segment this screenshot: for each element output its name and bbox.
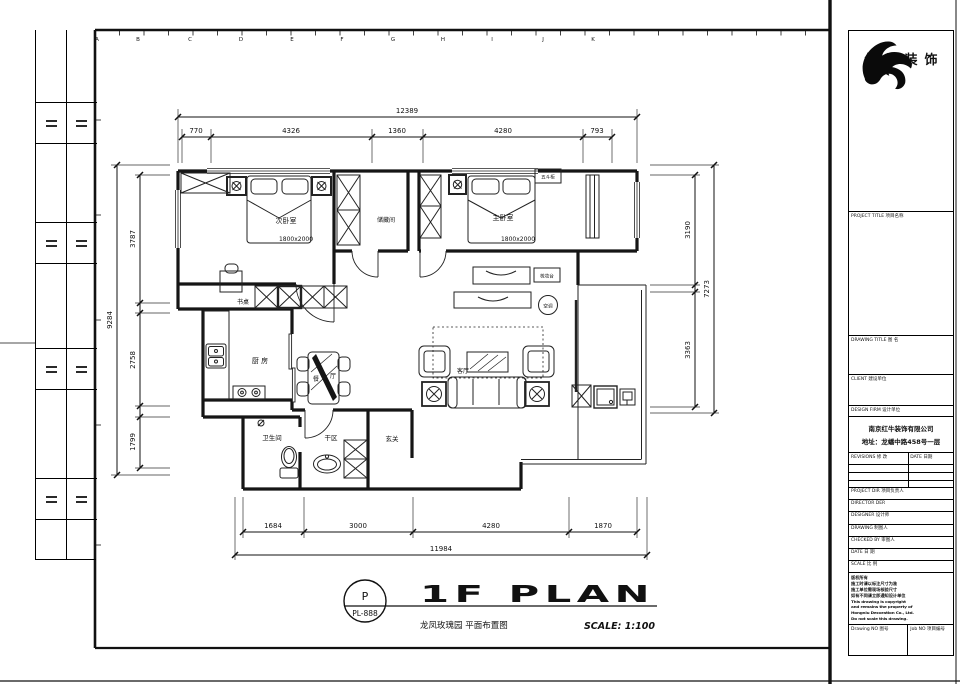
hall-cabinet-x — [301, 286, 324, 308]
svg-text:4280: 4280 — [482, 522, 500, 530]
armchair — [419, 346, 450, 377]
label-kitchen: 厨 房 — [252, 356, 268, 365]
label-bathroom: 卫生间 — [262, 433, 282, 442]
svg-text:4326: 4326 — [282, 127, 300, 135]
label-ac: 空调 — [543, 303, 553, 310]
bedroom2-furniture — [220, 176, 331, 292]
svg-text:1360: 1360 — [388, 127, 406, 135]
scale-row: SCALE 比 例 — [849, 560, 953, 572]
label-dining-left: 餐 — [313, 375, 319, 383]
hall-cabinet-x — [324, 286, 347, 308]
revision-row — [849, 472, 953, 480]
svg-text:H: H — [441, 37, 445, 43]
checked-row: CHECKED BY 审图人 — [849, 536, 953, 548]
label-master: 主卧室 — [493, 213, 514, 222]
svg-text:793: 793 — [590, 127, 603, 135]
label-bed2-size: 1800x2000 — [279, 236, 313, 243]
svg-text:C: C — [188, 37, 192, 43]
notes-block: 版权所有 施工时请以标注尺寸为准 施工单位需现场核验尺寸 如有不同请立即通知设计… — [849, 572, 953, 624]
job-no-label: Job NO 项目编号 — [908, 625, 953, 655]
dresser — [473, 267, 530, 284]
svg-text:K: K — [591, 37, 595, 43]
shoe-cabinet-x — [344, 440, 367, 478]
svg-text:J: J — [541, 37, 544, 43]
dining-set — [297, 352, 350, 404]
svg-text:F: F — [340, 37, 343, 43]
logo-section: 红牛装饰 — [849, 31, 953, 211]
revisions-table: REVISIONS 修 改 DATE 日期 — [849, 452, 953, 487]
floor-drain — [258, 420, 264, 426]
svg-text:E: E — [290, 37, 294, 43]
stamp-letter: P — [362, 590, 369, 603]
bed — [247, 176, 311, 243]
stove — [233, 386, 265, 399]
plan-subtitle: 龙凤玫瑰园 平面布置图 — [420, 620, 508, 631]
dim-top-total: 12389 — [396, 107, 418, 115]
nightstand — [449, 175, 466, 194]
client-box — [849, 385, 953, 405]
signature-cell — [36, 348, 97, 390]
project-title-box — [849, 222, 953, 335]
svg-text:G: G — [391, 37, 395, 43]
armchair — [523, 346, 554, 377]
label-chest: 五斗柜 — [541, 174, 555, 181]
bed — [468, 176, 535, 243]
signature-cell — [36, 222, 97, 264]
closet-rails — [586, 175, 599, 238]
coffee-table — [467, 352, 508, 372]
drawing-sheet: A B C D E F G H I J K — [0, 0, 960, 684]
label-entry: 玄关 — [386, 434, 400, 443]
svg-text:1684: 1684 — [264, 522, 282, 530]
svg-text:3787: 3787 — [129, 230, 137, 248]
svg-text:I: I — [491, 37, 493, 43]
svg-text:2758: 2758 — [129, 351, 137, 369]
dimensions: 12389 770 4326 1360 4280 793 11984 1684 … — [106, 107, 719, 560]
plan-title: 1F PLAN — [420, 582, 655, 608]
dim-left-total: 9284 — [106, 311, 114, 329]
sofa — [448, 377, 526, 408]
tv-cabinet — [454, 292, 531, 308]
signature-cell — [36, 102, 97, 144]
signature-strip — [35, 30, 96, 560]
master-furniture — [449, 169, 561, 284]
number-row: Drawing NO 图号 Job NO 项目编号 — [849, 624, 953, 655]
director-row: DIRECTOR DER — [849, 499, 953, 511]
svg-text:4280: 4280 — [494, 127, 512, 135]
project-title-label: PROJECT TITLE 项目名称 — [849, 211, 953, 222]
dim-bottom-total: 11984 — [430, 545, 453, 553]
svg-text:3363: 3363 — [684, 341, 692, 359]
side-table — [422, 382, 446, 406]
label-dining-right: 厅 — [330, 373, 336, 380]
floor-plan: 次卧室 1800x2000 储藏间 主卧室 1800x2000 书桌 厨 房 餐… — [175, 168, 646, 489]
date-col-label: DATE 日期 — [908, 453, 953, 464]
hall-cabinet-x — [255, 286, 278, 308]
living-room-furniture — [419, 292, 558, 408]
plan-title-group: P PL-888 1F PLAN 龙凤玫瑰园 平面布置图 SCALE: 1:10… — [344, 580, 657, 632]
bull-logo — [849, 31, 921, 109]
label-dry-area: 干区 — [325, 434, 339, 442]
revision-row — [849, 480, 953, 488]
label-dresser: 梳妆台 — [540, 273, 554, 280]
firm-address: 地址：龙蟠中路458号一层 — [862, 436, 941, 446]
client-label: CLIENT 建设单位 — [849, 374, 953, 385]
drawing-title-label: DRAWING TITLE 图 名 — [849, 335, 953, 346]
svg-text:1870: 1870 — [594, 522, 612, 530]
side-table — [525, 382, 549, 406]
label-storage: 储藏间 — [377, 216, 395, 224]
wardrobe-x — [420, 175, 441, 238]
sink — [206, 344, 226, 368]
stamp-code: PL-888 — [352, 609, 378, 618]
svg-text:1799: 1799 — [129, 433, 137, 451]
toilet — [280, 447, 298, 479]
firm-name: 南京红牛装饰有限公司 — [869, 423, 934, 433]
label-master-bed-size: 1800x2000 — [501, 236, 535, 243]
design-firm-label: DESIGN FIRM 设计单位 — [849, 405, 953, 416]
designer-row: DESIGNER 设计师 — [849, 511, 953, 524]
balcony — [521, 285, 646, 464]
balcony-cabinet-x — [572, 385, 591, 407]
revision-row — [849, 464, 953, 472]
signature-cell — [36, 478, 97, 520]
desk — [220, 264, 242, 292]
label-bedroom2: 次卧室 — [276, 216, 297, 225]
label-living: 客厅 — [457, 367, 469, 375]
kitchen-fixtures — [204, 311, 265, 399]
svg-text:3190: 3190 — [684, 221, 692, 239]
drawing-no-label: Drawing NO 图号 — [849, 625, 908, 655]
nightstand — [312, 177, 331, 195]
ruler-letters: A B C D E F G H I J K — [95, 37, 595, 43]
wash-basin — [314, 455, 341, 473]
drawing-row: DRAWING 制图人 — [849, 524, 953, 536]
wardrobe-x — [181, 173, 230, 193]
dim-right-total: 7273 — [703, 280, 711, 298]
svg-text:770: 770 — [189, 127, 202, 135]
plan-scale: SCALE: 1:100 — [584, 621, 655, 632]
wardrobe-x — [337, 175, 360, 245]
svg-text:D: D — [239, 37, 243, 43]
hall-cabinet-x — [278, 286, 301, 308]
design-firm-info: 南京红牛装饰有限公司 地址：龙蟠中路458号一层 — [849, 416, 953, 452]
drawing-title-box — [849, 346, 953, 374]
date-row: DATE 日 期 — [849, 548, 953, 560]
svg-text:B: B — [136, 37, 140, 43]
label-desk: 书桌 — [237, 298, 249, 306]
title-block: 红牛装饰 PROJECT TITLE 项目名称 DRAWING TITLE 图 … — [848, 30, 954, 656]
svg-text:3000: 3000 — [349, 522, 367, 530]
revisions-label: REVISIONS 修 改 — [849, 453, 887, 464]
project-dir-row: PROJECT DIR 项目负责人 — [849, 487, 953, 499]
